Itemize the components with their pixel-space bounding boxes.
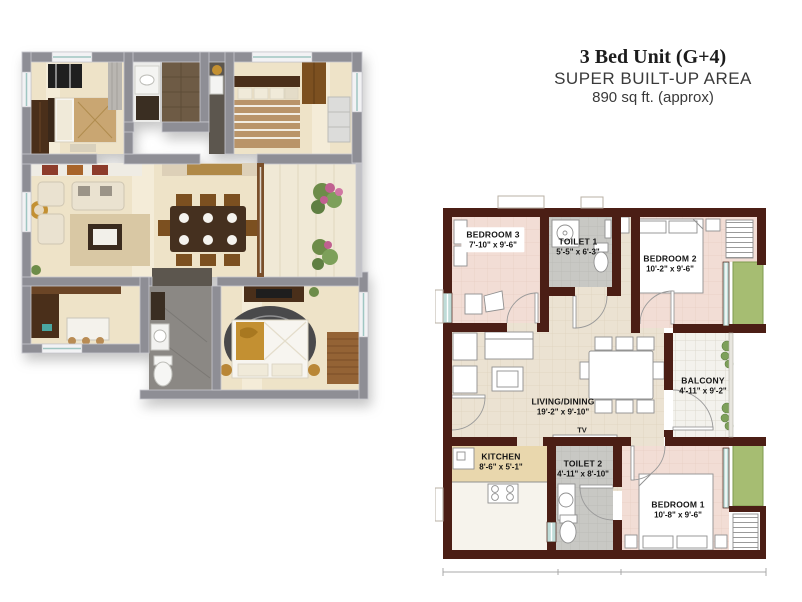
room-label-toilet-1: TOILET 1 5'-5" x 6'-3" xyxy=(556,236,599,257)
room-label-bedroom-1: BEDROOM 1 10'-8" x 9'-6" xyxy=(651,499,704,520)
room-dims: 7'-10" x 9'-6" xyxy=(466,240,519,250)
3d-toilet-1 xyxy=(135,62,200,122)
room-dims: 10'-2" x 9'-6" xyxy=(643,264,696,274)
room-name: BALCONY xyxy=(679,375,726,386)
room-name: TOILET 1 xyxy=(556,236,599,247)
room-name: KITCHEN xyxy=(479,451,522,462)
room-name: BEDROOM 1 xyxy=(651,499,704,510)
area-value: 890 sq ft. (approx) xyxy=(528,89,778,107)
room-label-bedroom-2: BEDROOM 2 10'-2" x 9'-6" xyxy=(643,253,696,274)
room-name: LIVING/DINING xyxy=(531,396,594,407)
unit-type-title: 3 Bed Unit (G+4) xyxy=(528,46,778,68)
room-dims: 4'-11" x 9'-2" xyxy=(679,386,726,396)
room-dims: 4'-11" x 8'-10" xyxy=(557,469,609,479)
room-dims: 10'-8" x 9'-6" xyxy=(651,510,704,520)
room-label-toilet-2: TOILET 2 4'-11" x 8'-10" xyxy=(557,458,609,479)
room-name: BEDROOM 3 xyxy=(466,229,519,240)
room-name: BEDROOM 2 xyxy=(643,253,696,264)
floor-plan-2d: BEDROOM 3 7'-10" x 9'-6" TOILET 1 5'-5" … xyxy=(435,190,770,580)
room-dims: 5'-5" x 6'-3" xyxy=(556,247,599,257)
floor-plan-3d-render xyxy=(12,42,400,430)
floor-plan-page: BEDROOM 3 7'-10" x 9'-6" TOILET 1 5'-5" … xyxy=(0,0,802,602)
room-label-kitchen: KITCHEN 8'-6" x 5'-1" xyxy=(479,451,522,472)
room-labels: BEDROOM 3 7'-10" x 9'-6" TOILET 1 5'-5" … xyxy=(435,190,770,580)
room-name: TOILET 2 xyxy=(557,458,609,469)
room-dims: 8'-6" x 5'-1" xyxy=(479,462,522,472)
tv-label: TV xyxy=(577,426,587,435)
room-label-living-dining: LIVING/DINING 19'-2" x 9'-10" xyxy=(531,396,594,417)
built-up-area-label: SUPER BUILT-UP AREA xyxy=(528,69,778,89)
plan-title-block: 3 Bed Unit (G+4) SUPER BUILT-UP AREA 890… xyxy=(528,46,778,107)
room-label-balcony: BALCONY 4'-11" x 9'-2" xyxy=(679,375,726,396)
room-label-bedroom-3: BEDROOM 3 7'-10" x 9'-6" xyxy=(461,227,524,252)
room-dims: 19'-2" x 9'-10" xyxy=(531,407,594,417)
